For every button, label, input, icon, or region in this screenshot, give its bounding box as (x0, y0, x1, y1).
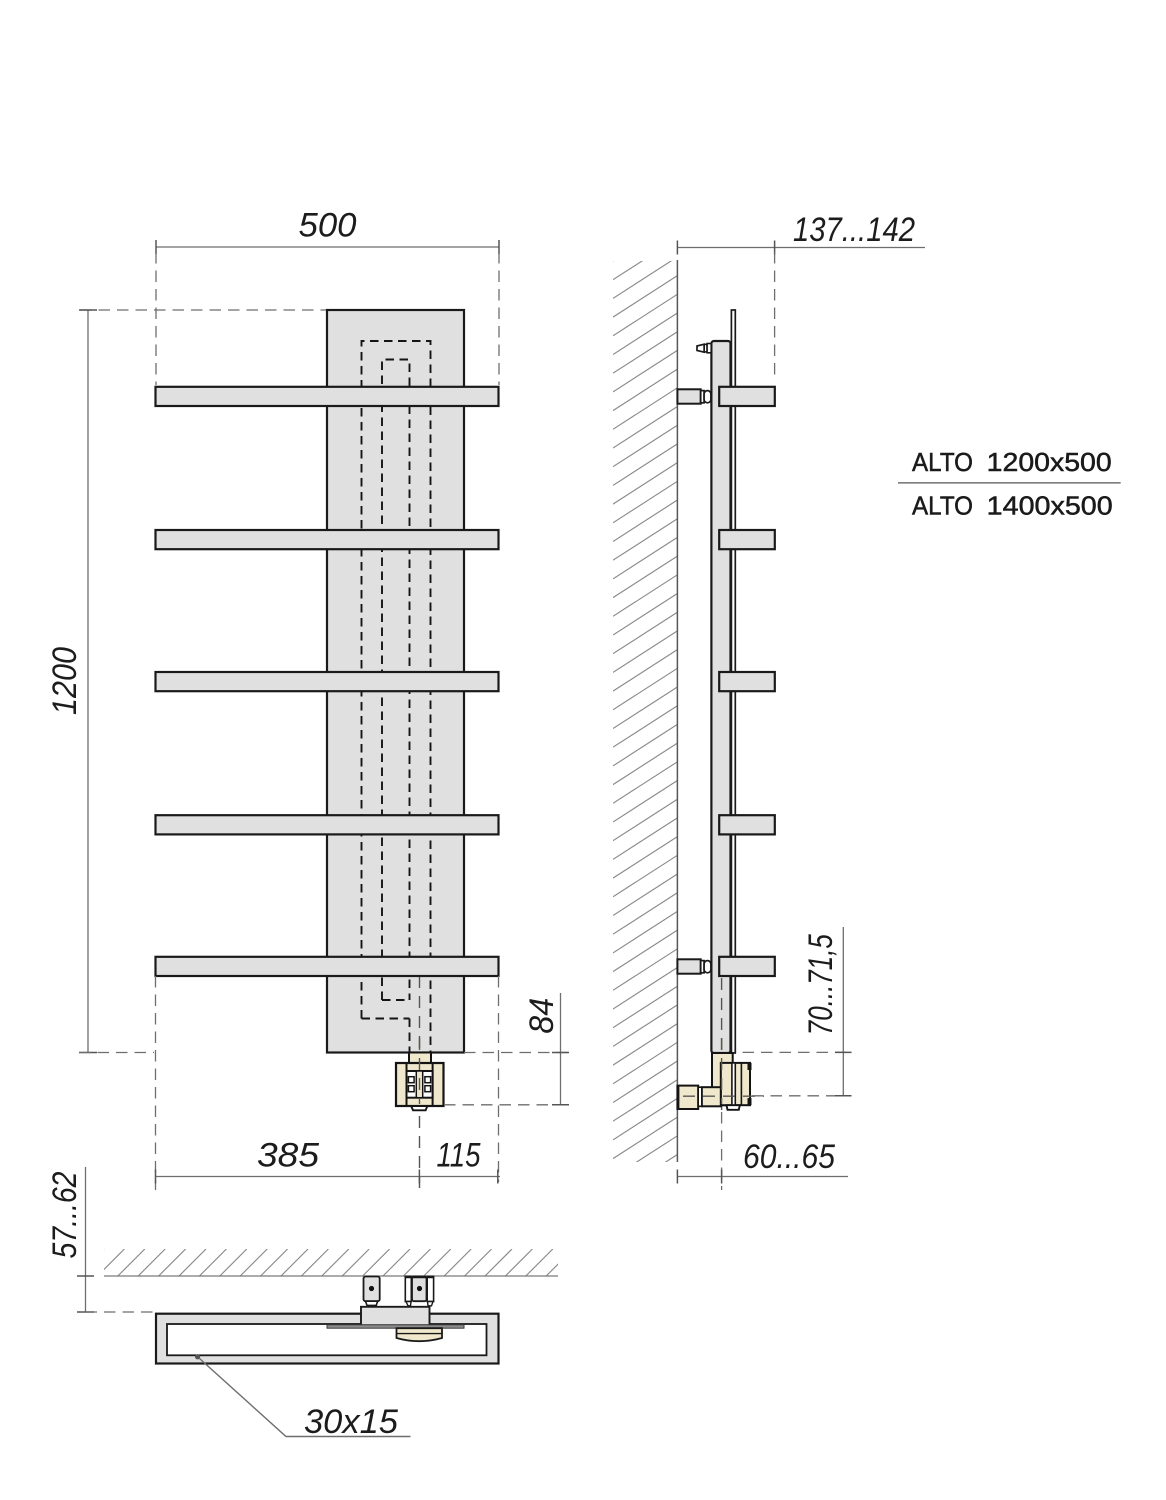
svg-text:115: 115 (437, 1137, 481, 1175)
svg-text:385: 385 (257, 1137, 319, 1175)
svg-text:137...142: 137...142 (793, 211, 915, 249)
svg-text:84: 84 (523, 998, 561, 1034)
svg-text:1400x500: 1400x500 (987, 491, 1113, 521)
svg-text:ALTO: ALTO (912, 491, 973, 521)
svg-text:1200: 1200 (46, 647, 84, 715)
svg-text:60...65: 60...65 (743, 1138, 835, 1176)
svg-text:ALTO: ALTO (912, 447, 973, 477)
svg-text:70...71,5: 70...71,5 (802, 934, 840, 1035)
svg-text:500: 500 (299, 207, 357, 245)
svg-text:1200x500: 1200x500 (987, 447, 1112, 477)
svg-text:57...62: 57...62 (46, 1171, 84, 1258)
svg-text:30x15: 30x15 (304, 1403, 398, 1441)
